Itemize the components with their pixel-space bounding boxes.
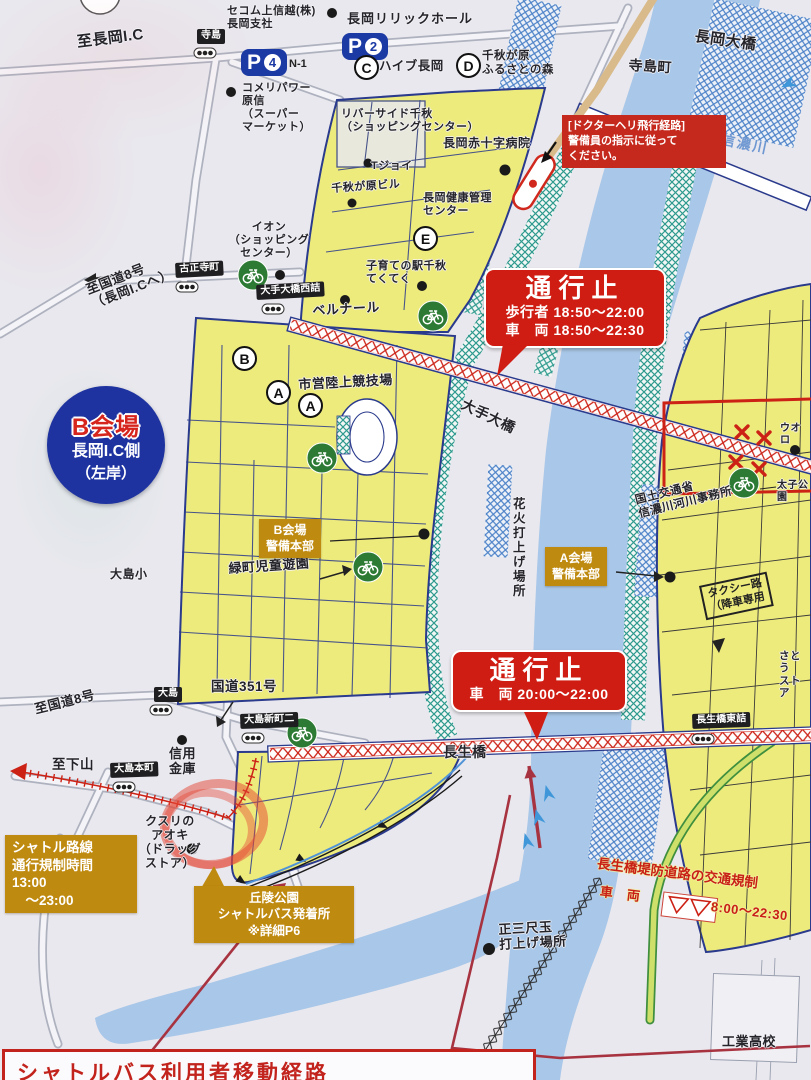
doctor-heli-notice: [ドクターヘリ飛行経路] 警備員の指示に従って ください。 xyxy=(562,115,726,168)
closure-hours: 車 両 20:00～22:00 xyxy=(459,685,619,703)
place-label-lyric-hall: 長岡リリックホール xyxy=(347,11,473,26)
place-label-oshima-elementary: 大島小 xyxy=(110,567,148,581)
parking-number: 2 xyxy=(365,38,382,55)
stop-circle-e: E xyxy=(413,226,438,251)
closure-title: 通行止 xyxy=(459,656,619,685)
place-label-kogyo-highschool: 工業高校 xyxy=(722,1034,776,1049)
venue-b-subtitle2: （左岸） xyxy=(76,462,136,483)
stop-circle-a-1: A xyxy=(266,380,291,405)
place-label-secom: セコム上信越(株) 長岡支社 xyxy=(227,5,316,31)
shuttle-terminal-badge: 丘陵公園 シャトルバス発着所 ※詳細P6 xyxy=(194,886,354,943)
stop-label-hive-nagaoka: ハイブ長岡 xyxy=(379,59,444,74)
place-label-shinkin-bank: 信用 金庫 xyxy=(169,746,196,777)
shuttle-user-route-box: シャトルバス利用者移動経路 xyxy=(2,1049,536,1080)
signal-badge-oshima-shinmachi: 大島新町二 xyxy=(240,712,298,729)
parking-badge-p4: P 4 xyxy=(241,49,287,76)
stop-circle-a-2: A xyxy=(298,393,323,418)
parking-number: 4 xyxy=(264,54,281,71)
stop-circle-d: D xyxy=(456,53,481,78)
place-label-fireworks-launch-site: 花火打上げ場所 xyxy=(510,497,525,627)
signal-badge-oshima: 大島 xyxy=(154,687,182,702)
closure-hours: 歩行者 18:50～22:00 車 両 18:50～22:30 xyxy=(492,303,658,339)
signal-badge-oshima-honcho: 大島本町 xyxy=(110,761,158,777)
place-label-komeri: コメリパワー 原信 （スーパー マーケット） xyxy=(242,82,311,134)
festival-traffic-map: 至長岡I.C セコム上信越(株) 長岡支社 コメリパワー 原信 （スーパー マー… xyxy=(0,0,811,1080)
place-label-uoroku: ウオロ xyxy=(780,423,811,447)
place-label-sanjakudama-site: 正三尺玉 打上げ場所 xyxy=(498,918,567,952)
signal-badge-koshojimachi: 古正寺町 xyxy=(175,260,224,277)
parking-letter: P xyxy=(348,36,362,57)
hq-badge-b: B会場 警備本部 xyxy=(259,519,321,558)
signal-badge-terashima: 寺島 xyxy=(197,29,225,44)
venue-b-subtitle: 長岡I.C側 xyxy=(72,442,140,462)
closure-bubble-ohte: 通行止 歩行者 18:50～22:00 車 両 18:50～22:30 xyxy=(484,268,666,348)
shuttle-restriction-badge: シャトル路線 通行規制時間 13:00 ～23:00 xyxy=(5,835,137,913)
athletics-stadium xyxy=(337,399,397,475)
stop-label-furusato-forest: 千秋が原 ふるさとの森 xyxy=(482,50,554,77)
bridge-label-chosei-bashi: 長生橋 xyxy=(443,744,487,761)
place-label-taishi-park: 太子公園 xyxy=(777,480,811,504)
place-label-kusuri-no-aoki: クスリの アオキ （ドラッグ ストア） xyxy=(132,814,208,871)
place-label-tekuteku: 子育ての駅千秋 てくてく xyxy=(366,260,447,286)
road-label-route351: 国道351号 xyxy=(211,679,277,695)
hq-badge-a: A会場 警備本部 xyxy=(545,547,607,586)
road-label-to-shimoyama: 至下山 xyxy=(52,757,94,773)
parking-letter: P xyxy=(247,52,261,73)
stop-circle-c: C xyxy=(354,55,379,80)
place-label-sato-store: さとう ストア xyxy=(779,650,811,700)
venue-b-title: B会場 xyxy=(72,407,140,442)
signal-badge-choseibashi-higashizume: 長生橋東詰 xyxy=(692,712,750,729)
place-label-aeon: イオン （ショッピング センター） xyxy=(224,221,314,260)
shuttle-user-route-title: シャトルバス利用者移動経路 xyxy=(17,1057,329,1080)
place-label-terashimacho: 寺島町 xyxy=(628,57,672,76)
place-label-tjoy: Tジョイ xyxy=(371,160,413,173)
place-label-riverside-senshu: リバーサイド千秋 （ショッピングセンター） xyxy=(341,108,479,134)
place-label-health-center: 長岡健康管理 センター xyxy=(423,192,492,218)
closure-title: 通行止 xyxy=(492,274,658,303)
closure-bubble-chosei: 通行止 車 両 20:00～22:00 xyxy=(451,650,627,712)
place-label-redcross-hospital: 長岡赤十字病院 xyxy=(443,136,531,150)
parking-note-n1: N-1 xyxy=(289,58,307,70)
stop-circle-b: B xyxy=(232,346,257,371)
venue-b-badge: B会場 長岡I.C側 （左岸） xyxy=(47,386,165,504)
